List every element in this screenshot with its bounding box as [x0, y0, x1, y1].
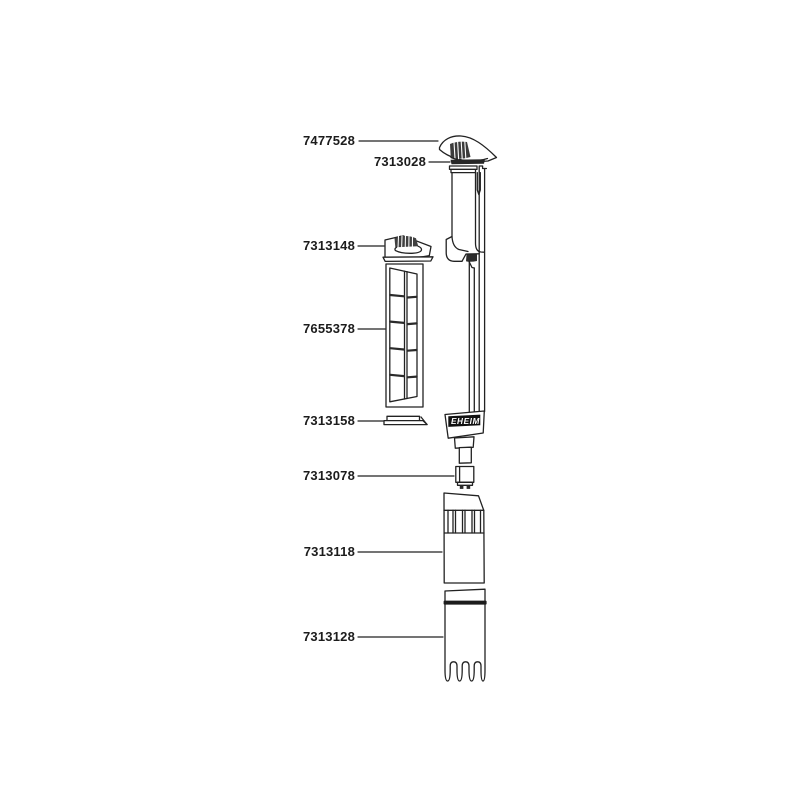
brand-logo-text: EHEIM — [451, 417, 480, 426]
part-number-label-7313028: 7313028 — [366, 154, 426, 170]
part-drawing-suction-tube — [444, 589, 487, 681]
part-number-label-7313118: 7313118 — [295, 544, 355, 560]
part-drawing-filter-cartridge — [386, 264, 423, 407]
part-number-label-7313128: 7313128 — [295, 629, 355, 645]
part-drawing-seal-ring — [451, 159, 486, 164]
part-drawing-extension-tube — [444, 493, 484, 583]
part-drawing-coupler — [456, 467, 474, 489]
exploded-view-drawing: EHEIM — [0, 0, 800, 800]
part-number-label-7313078: 7313078 — [295, 468, 355, 484]
part-number-label-7655378: 7655378 — [295, 321, 355, 337]
part-drawing-valve-plate — [384, 416, 427, 424]
part-drawing-top-cover — [440, 136, 497, 161]
part-number-label-7313158: 7313158 — [295, 413, 355, 429]
parts-diagram-canvas: EHEIM — [0, 0, 800, 800]
pump-head-drawing: EHEIM — [445, 411, 484, 463]
part-number-label-7313148: 7313148 — [295, 238, 355, 254]
part-drawing-valve-cap — [383, 235, 433, 261]
part-number-label-7477528: 7477528 — [295, 133, 355, 149]
main-body-drawing — [446, 166, 486, 413]
